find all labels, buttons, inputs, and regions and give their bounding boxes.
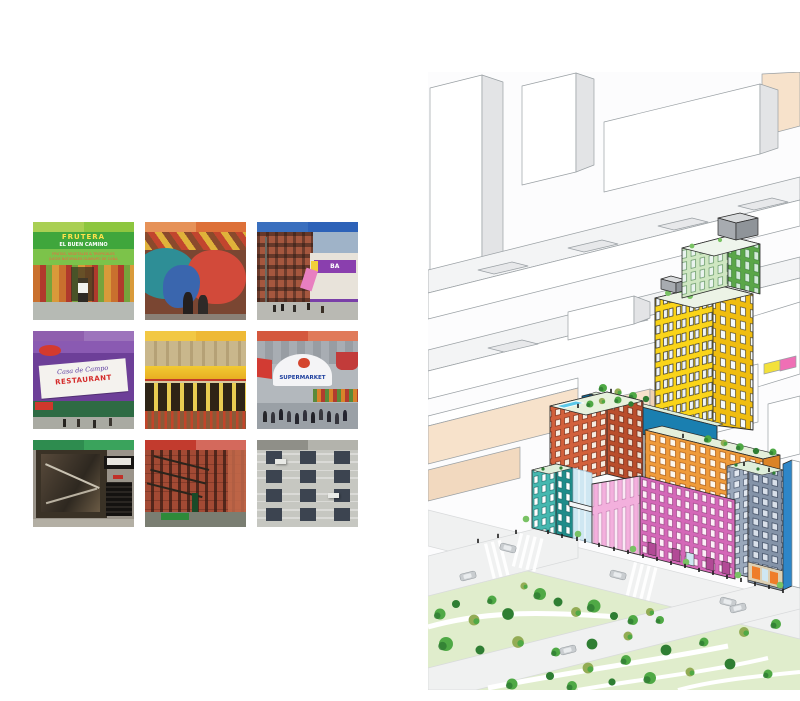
photo-tile-supermarket: SUPERMARKET	[257, 331, 358, 429]
color-bar-segment	[84, 222, 135, 232]
color-bar-segment	[145, 222, 196, 232]
photo: Casa de Campo RESTAURANT	[33, 341, 134, 429]
color-bar-segment	[33, 222, 84, 232]
presentation-board: FRUTERA EL BUEN CAMINO FRUTAS, VEGETALES…	[0, 0, 800, 701]
red-awning	[336, 352, 358, 370]
sidewalk	[33, 519, 134, 527]
color-bar-segment	[257, 222, 308, 232]
bakery-sign: BA	[314, 260, 356, 273]
color-bar	[257, 331, 358, 341]
street	[257, 302, 358, 320]
building-upper-floors	[145, 341, 246, 367]
roll-down-gate	[106, 482, 132, 516]
photo: BA	[257, 232, 358, 320]
photo-tile-frutera: FRUTERA EL BUEN CAMINO FRUTAS, VEGETALES…	[33, 222, 134, 320]
traffic-signal	[192, 493, 197, 511]
ac-unit	[328, 493, 339, 498]
color-bar-segment	[308, 440, 359, 450]
green-roof-bulkhead	[718, 213, 758, 240]
crowd-silhouettes	[263, 411, 267, 422]
photo: FRUTERA EL BUEN CAMINO FRUTAS, VEGETALES…	[33, 232, 134, 320]
color-bar-segment	[257, 331, 308, 341]
color-bar-segment	[308, 222, 359, 232]
color-bar-segment	[257, 440, 308, 450]
pedestrians	[63, 419, 66, 427]
sidewalk	[257, 403, 358, 429]
teal-block	[532, 464, 573, 538]
color-bar	[257, 440, 358, 450]
white-sign	[107, 458, 131, 465]
color-bar	[145, 440, 246, 450]
color-bar-segment	[145, 440, 196, 450]
round-logo	[298, 358, 309, 369]
window-grid	[257, 450, 358, 527]
sidewalk	[145, 314, 246, 320]
color-bar	[257, 222, 358, 232]
color-bar-segment	[196, 440, 247, 450]
storefront-openings	[145, 383, 246, 411]
photo-tile-yellow-restaurant	[145, 331, 246, 429]
store-sign-subtext: FRUTAS, VEGETALES & TROPICALES	[33, 253, 134, 257]
color-bar-segment	[84, 331, 135, 341]
color-bar-segment	[308, 331, 359, 341]
ac-unit	[275, 459, 286, 464]
sidewalk	[33, 302, 134, 320]
photo	[145, 450, 246, 527]
pedestrians	[281, 304, 284, 311]
red-fence	[145, 411, 246, 429]
photo	[145, 341, 246, 429]
color-bar-segment	[33, 440, 84, 450]
lamp-pole	[265, 237, 267, 302]
color-bar	[33, 331, 134, 341]
produce-stand	[313, 389, 358, 402]
photo	[33, 450, 134, 527]
color-bar	[145, 222, 246, 232]
color-bar	[33, 222, 134, 232]
photo-tile-dark-storefront	[33, 440, 134, 527]
color-bar	[145, 331, 246, 341]
color-bar-segment	[33, 331, 84, 341]
photo-tile-tenements	[145, 440, 246, 527]
photo-tile-bakery-street: BA	[257, 222, 358, 320]
yellow-awning	[145, 366, 246, 382]
pedestrian	[78, 278, 87, 303]
white-building-blue-edge	[783, 460, 800, 590]
red-sign	[35, 402, 53, 410]
green-awning	[161, 513, 189, 520]
restaurant-banner: Casa de Campo RESTAURANT	[39, 358, 128, 399]
store-sign-subtext: JUGOS NATURALES GUARAPO DE CAÑA	[33, 258, 134, 262]
yellow-tower	[655, 276, 753, 430]
color-bar-segment	[84, 440, 135, 450]
store-sign-text: FRUTERA	[33, 234, 134, 241]
color-bar-segment	[145, 331, 196, 341]
mural-shape	[163, 265, 199, 307]
street	[145, 512, 246, 527]
photo-tile-mural	[145, 222, 246, 320]
sidewalk	[33, 417, 134, 429]
color-bar-segment	[196, 222, 247, 232]
photo	[257, 450, 358, 527]
red-awning	[257, 358, 272, 379]
red-oval-sign	[39, 345, 61, 356]
color-bar	[33, 440, 134, 450]
supermarket-sign-text: SUPERMARKET	[273, 376, 332, 382]
axon-illustration	[428, 72, 800, 690]
photo: SUPERMARKET	[257, 341, 358, 429]
photo-tile-gray-facade	[257, 440, 358, 527]
adjacent-building	[228, 450, 246, 512]
striped-awning	[145, 232, 246, 250]
photo	[145, 232, 246, 320]
color-bar-segment	[196, 331, 247, 341]
photo-collage: FRUTERA EL BUEN CAMINO FRUTAS, VEGETALES…	[33, 222, 358, 527]
red-sign	[113, 475, 123, 480]
store-sign-text: EL BUEN CAMINO	[33, 243, 134, 248]
photo-tile-casa-de-campo: Casa de Campo RESTAURANT	[33, 331, 134, 429]
